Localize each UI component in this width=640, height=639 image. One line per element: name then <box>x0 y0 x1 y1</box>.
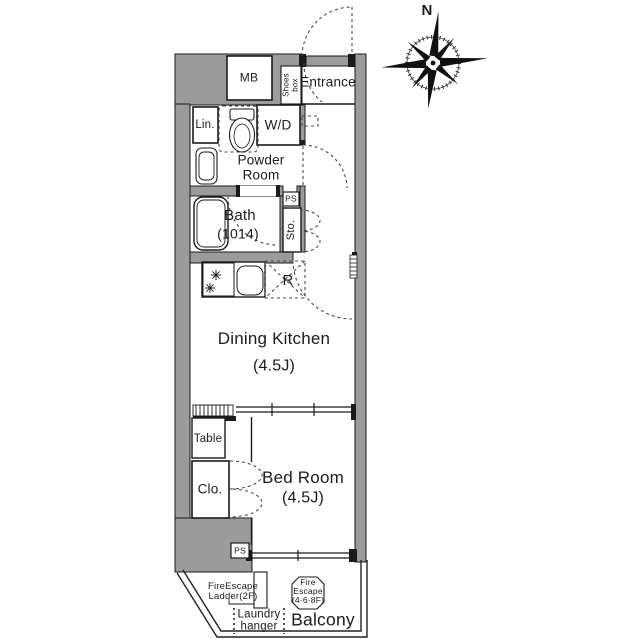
kitchen-counter <box>202 262 265 297</box>
bathtub-icon <box>194 197 228 250</box>
linen-label: Lin. <box>195 119 214 131</box>
compass-north-label: N <box>421 3 432 19</box>
floor-plan-drawing <box>0 0 640 639</box>
stove-icon <box>203 263 234 296</box>
entrance-label: Entrance <box>300 76 356 91</box>
laundry-hanger-label: Laundry hanger <box>238 609 281 634</box>
compass-rose-icon <box>381 11 488 110</box>
fire-escape-ladder-label: FireEscape Ladder(2F) <box>208 582 258 603</box>
balcony-label: Balcony <box>291 611 355 630</box>
sink-icon <box>237 266 263 295</box>
floor-plan: MB Shoes box Entrance Lin. W/D Powder Ro… <box>0 0 640 639</box>
vent-hatch <box>350 255 357 278</box>
mb-label: MB <box>240 72 258 85</box>
ps-upper-label: PS <box>285 194 297 203</box>
table-label: Table <box>194 433 223 445</box>
bath-size-label: (1014) <box>217 226 259 241</box>
closet-label: Clo. <box>198 483 223 498</box>
toilet-icon <box>219 106 258 152</box>
storage-label: Sto. <box>286 220 298 240</box>
fire-escape-hatch-label: Fire Escape (4·6·8F) <box>292 578 324 606</box>
bedroom-window <box>252 550 350 561</box>
dining-kitchen-label: Dining Kitchen <box>218 330 330 348</box>
door-pocket-hatch <box>193 405 233 416</box>
ps-lower-label: PS <box>234 546 246 555</box>
bath-label: Bath <box>224 208 256 224</box>
shoes-box-label: Shoes box <box>282 73 299 97</box>
refrigerator-label: R <box>282 273 293 289</box>
sliding-door <box>236 403 352 416</box>
bedroom-label: Bed Room <box>262 469 344 487</box>
powder-room-label: Powder Room <box>238 153 285 182</box>
bedroom-size: (4.5J) <box>282 489 324 506</box>
dining-kitchen-size: (4.5J) <box>253 357 295 374</box>
washer-dryer-label: W/D <box>265 119 292 134</box>
